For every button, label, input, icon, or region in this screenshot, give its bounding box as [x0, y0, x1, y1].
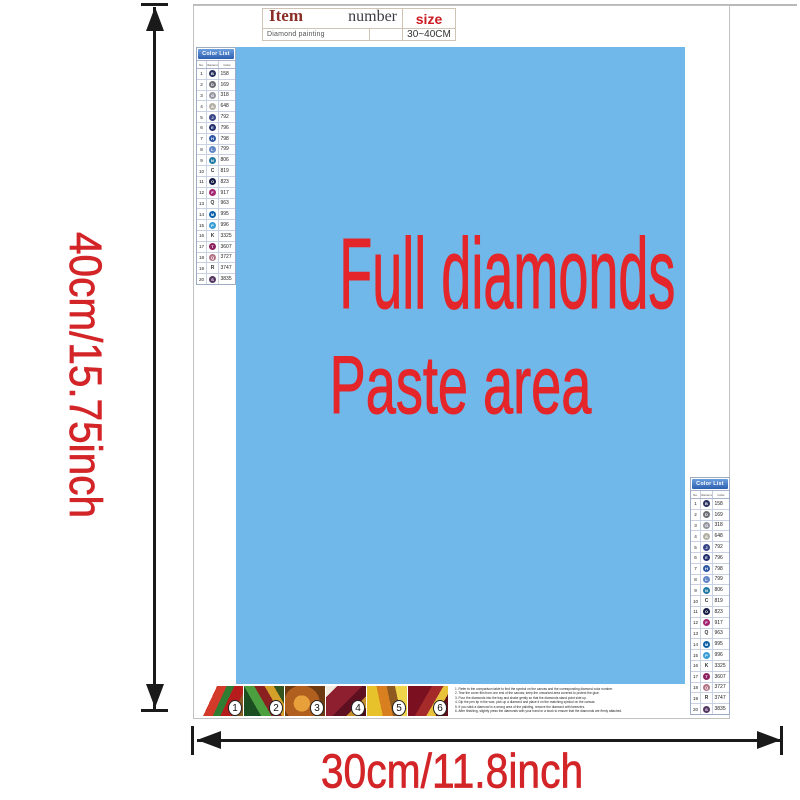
color-code: 917: [219, 190, 235, 196]
symbol-cell: B: [207, 69, 219, 79]
color-number: 16: [691, 661, 701, 671]
height-arrow-up-head: [146, 7, 164, 31]
color-list-row: 16 K3325: [197, 231, 235, 242]
number-value: [370, 29, 403, 40]
color-list-row: 17 T3607: [691, 672, 729, 683]
color-swatch: E: [703, 554, 710, 561]
color-number: 17: [691, 672, 701, 682]
color-swatch: J: [209, 114, 216, 121]
paste-area-subtitle: Paste area: [312, 344, 608, 428]
height-arrow-line: [153, 7, 156, 710]
color-list-row: 11 O823: [197, 177, 235, 188]
height-arrow-top-tick: [141, 3, 168, 6]
color-list-row: 5 J792: [197, 112, 235, 123]
color-code: 3607: [219, 244, 235, 250]
diamond-painting-product-image: Item number size Diamond painting 30~40C…: [0, 0, 800, 800]
color-swatch: O: [703, 608, 710, 615]
symbol-cell: E: [207, 123, 219, 133]
color-list-column-label: Diamond: [701, 491, 713, 498]
color-swatch: P: [209, 222, 216, 229]
color-number: 10: [197, 166, 207, 176]
color-number: 15: [197, 220, 207, 230]
width-arrow-left-tick: [191, 726, 194, 755]
color-swatch: B: [703, 500, 710, 507]
color-list-right: Color ListNo.DiamondColor 1 B158 2 D169 …: [690, 477, 730, 715]
color-list-row: 7 H798: [197, 134, 235, 145]
color-number: 6: [197, 123, 207, 133]
step-number-badge: 6: [433, 700, 447, 716]
color-list-row: 6 E796: [197, 123, 235, 134]
color-number: 1: [691, 499, 701, 509]
height-dimension-label: 40cm/15.75inch: [59, 232, 111, 518]
color-list-row: 9 N806: [691, 585, 729, 596]
height-arrow-bottom-tick: [141, 709, 168, 712]
color-code: 798: [219, 136, 235, 142]
color-number: 3: [691, 521, 701, 531]
step-thumbnail: 6: [408, 686, 448, 716]
color-code: 799: [219, 146, 235, 152]
color-list-left: Color ListNo.DiamondColor 1 B158 2 D169 …: [196, 47, 236, 285]
color-number: 17: [197, 242, 207, 252]
color-code: 3835: [219, 276, 235, 282]
symbol-cell: D: [701, 510, 713, 520]
color-number: 9: [197, 155, 207, 165]
color-list-row: 8 L799: [197, 145, 235, 156]
color-list-row: 4 A648: [691, 531, 729, 542]
color-number: 16: [197, 231, 207, 241]
symbol-cell: Q: [207, 253, 219, 263]
color-swatch: N: [703, 587, 710, 594]
step-thumbnails: 1 2 3 4 5 6: [203, 686, 448, 716]
color-number: 7: [691, 564, 701, 574]
step-thumbnail: 1: [203, 686, 243, 716]
width-dimension-label: 30cm/11.8inch: [321, 745, 583, 800]
symbol-cell: C: [207, 166, 219, 176]
color-symbol: C: [211, 168, 215, 174]
color-number: 11: [197, 177, 207, 187]
color-code: 648: [219, 103, 235, 109]
color-list-row: 20 S3835: [197, 274, 235, 284]
width-arrow-right-tick: [780, 726, 783, 755]
color-code: 318: [713, 522, 729, 528]
paste-area-title: Full diamonds: [339, 223, 581, 325]
color-swatch: E: [209, 124, 216, 131]
color-number: 9: [691, 585, 701, 595]
color-number: 5: [691, 542, 701, 552]
color-code: 3747: [219, 265, 235, 271]
symbol-cell: O: [207, 177, 219, 187]
symbol-cell: S: [207, 274, 219, 284]
color-symbol: R: [211, 265, 215, 271]
color-swatch: O: [209, 178, 216, 185]
color-code: 799: [713, 576, 729, 582]
color-list-row: 14 M995: [197, 209, 235, 220]
color-list-row: 12 F917: [197, 188, 235, 199]
step-thumbnail: 4: [326, 686, 366, 716]
symbol-cell: D: [207, 80, 219, 90]
color-code: 158: [713, 501, 729, 507]
symbol-cell: O: [701, 607, 713, 617]
color-code: 792: [219, 114, 235, 120]
color-list-row: 18 Q3727: [197, 253, 235, 264]
color-list-row: 4 A648: [197, 101, 235, 112]
symbol-cell: N: [701, 585, 713, 595]
color-list-row: 6 E796: [691, 553, 729, 564]
color-symbol: K: [705, 663, 709, 669]
color-list-row: 9 N806: [197, 155, 235, 166]
step-number-badge: 5: [392, 700, 406, 716]
color-swatch: D: [209, 81, 216, 88]
color-code: 996: [713, 652, 729, 658]
color-list-row: 13 Q963: [197, 199, 235, 210]
symbol-cell: T: [207, 242, 219, 252]
color-swatch: L: [209, 146, 216, 153]
color-list-row: 12 F917: [691, 618, 729, 629]
width-arrow-line: [197, 739, 782, 742]
color-code: 819: [713, 598, 729, 604]
color-number: 1: [197, 69, 207, 79]
step-number-badge: 4: [351, 700, 365, 716]
height-arrow-down-head: [146, 684, 164, 708]
symbol-cell: L: [701, 575, 713, 585]
color-number: 4: [691, 531, 701, 541]
color-list-title: Color List: [198, 49, 234, 59]
color-list-row: 15 P996: [197, 220, 235, 231]
color-number: 14: [691, 639, 701, 649]
color-swatch: H: [703, 565, 710, 572]
color-swatch: G: [703, 522, 710, 529]
color-list-title: Color List: [692, 479, 728, 489]
color-list-column-headers: No.DiamondColor: [691, 490, 729, 499]
symbol-cell: J: [207, 112, 219, 122]
color-list-row: 5 J792: [691, 542, 729, 553]
color-code: 796: [219, 125, 235, 131]
color-list-row: 10 C819: [691, 596, 729, 607]
symbol-cell: P: [207, 220, 219, 230]
step-thumbnail: 3: [285, 686, 325, 716]
symbol-cell: F: [207, 188, 219, 198]
color-swatch: L: [703, 576, 710, 583]
color-number: 18: [197, 253, 207, 263]
color-list-row: 15 P996: [691, 650, 729, 661]
color-code: 995: [219, 211, 235, 217]
symbol-cell: H: [207, 134, 219, 144]
color-number: 20: [197, 274, 207, 284]
color-swatch: S: [209, 276, 216, 283]
color-number: 8: [691, 575, 701, 585]
width-arrow-left-head: [197, 731, 221, 749]
color-swatch: T: [703, 673, 710, 680]
color-swatch: M: [703, 641, 710, 648]
item-number-header-cell: Item number: [263, 9, 403, 29]
color-number: 10: [691, 596, 701, 606]
color-code: 963: [219, 200, 235, 206]
color-number: 8: [197, 145, 207, 155]
step-number-badge: 2: [269, 700, 283, 716]
symbol-cell: T: [701, 672, 713, 682]
color-list-row: 7 H798: [691, 564, 729, 575]
color-list-column-label: No.: [691, 491, 701, 498]
color-code: 3607: [713, 674, 729, 680]
color-swatch: T: [209, 243, 216, 250]
color-code: 3325: [713, 663, 729, 669]
step-thumbnail: 2: [244, 686, 284, 716]
color-list-row: 8 L799: [691, 575, 729, 586]
color-code: 798: [713, 566, 729, 572]
instruction-line: 6. After finishing, slightly press the d…: [455, 709, 717, 713]
color-list-row: 3 G318: [197, 91, 235, 102]
symbol-cell: K: [701, 661, 713, 671]
color-number: 6: [691, 553, 701, 563]
color-list-row: 1 B158: [197, 69, 235, 80]
color-symbol: Q: [705, 630, 709, 636]
color-swatch: F: [703, 619, 710, 626]
color-number: 5: [197, 112, 207, 122]
color-swatch: N: [209, 157, 216, 164]
color-list-row: 17 T3607: [197, 242, 235, 253]
paste-area: Full diamonds Paste area: [236, 47, 685, 684]
symbol-cell: H: [701, 564, 713, 574]
symbol-cell: Q: [207, 199, 219, 209]
color-list-column-label: Color: [713, 491, 729, 498]
symbol-cell: G: [207, 91, 219, 101]
symbol-cell: Q: [701, 629, 713, 639]
color-number: 2: [197, 80, 207, 90]
color-list-row: 13 Q963: [691, 629, 729, 640]
item-info-table: Item number size Diamond painting 30~40C…: [262, 8, 456, 41]
color-number: 19: [197, 263, 207, 273]
color-number: 12: [197, 188, 207, 198]
symbol-cell: M: [207, 209, 219, 219]
color-number: 7: [197, 134, 207, 144]
color-number: 3: [197, 91, 207, 101]
color-swatch: B: [209, 70, 216, 77]
symbol-cell: A: [701, 531, 713, 541]
color-code: 819: [219, 168, 235, 174]
instruction-text: 1. Refer to the comparison table to find…: [455, 687, 717, 714]
symbol-cell: F: [701, 618, 713, 628]
step-number-badge: 1: [228, 700, 242, 716]
color-swatch: F: [209, 189, 216, 196]
color-code: 158: [219, 71, 235, 77]
symbol-cell: C: [701, 596, 713, 606]
item-value: Diamond painting: [263, 29, 370, 40]
color-code: 318: [219, 92, 235, 98]
size-value: 30~40CM: [403, 29, 455, 40]
color-list-row: 3 G318: [691, 521, 729, 532]
color-number: 12: [691, 618, 701, 628]
color-code: 3325: [219, 233, 235, 239]
color-code: 792: [713, 544, 729, 550]
width-arrow-right-head: [757, 731, 781, 749]
color-code: 806: [713, 587, 729, 593]
symbol-cell: E: [701, 553, 713, 563]
symbol-cell: G: [701, 521, 713, 531]
color-swatch: J: [703, 544, 710, 551]
symbol-cell: B: [701, 499, 713, 509]
color-list-column-headers: No.DiamondColor: [197, 60, 235, 69]
color-list-column-label: Diamond: [207, 61, 219, 68]
color-number: 14: [197, 209, 207, 219]
symbol-cell: J: [701, 542, 713, 552]
color-code: 169: [219, 82, 235, 88]
color-list-row: 10 C819: [197, 166, 235, 177]
color-list-row: 2 D169: [197, 80, 235, 91]
color-symbol: K: [211, 233, 215, 239]
color-number: 13: [197, 199, 207, 209]
color-code: 648: [713, 533, 729, 539]
color-code: 806: [219, 157, 235, 163]
symbol-cell: N: [207, 155, 219, 165]
color-swatch: G: [209, 92, 216, 99]
symbol-cell: P: [701, 650, 713, 660]
color-number: 11: [691, 607, 701, 617]
symbol-cell: A: [207, 101, 219, 111]
color-code: 796: [713, 555, 729, 561]
symbol-cell: R: [207, 263, 219, 273]
color-code: 823: [713, 609, 729, 615]
color-list-column-label: No.: [197, 61, 207, 68]
color-swatch: M: [209, 211, 216, 218]
color-number: 15: [691, 650, 701, 660]
color-code: 169: [713, 512, 729, 518]
color-list-row: 14 M995: [691, 639, 729, 650]
symbol-cell: L: [207, 145, 219, 155]
color-swatch: Q: [209, 254, 216, 261]
color-symbol: Q: [211, 200, 215, 206]
color-swatch: P: [703, 652, 710, 659]
symbol-cell: M: [701, 639, 713, 649]
color-swatch: A: [209, 103, 216, 110]
color-list-row: 19 R3747: [197, 263, 235, 274]
color-code: 963: [713, 630, 729, 636]
color-code: 3727: [219, 254, 235, 260]
color-symbol: C: [705, 598, 709, 604]
color-code: 996: [219, 222, 235, 228]
color-list-row: 16 K3325: [691, 661, 729, 672]
item-header-label: Item: [269, 6, 303, 26]
color-number: 13: [691, 629, 701, 639]
number-header-label: number: [348, 8, 397, 26]
symbol-cell: K: [207, 231, 219, 241]
color-swatch: D: [703, 511, 710, 518]
color-swatch: A: [703, 533, 710, 540]
color-list-row: 1 B158: [691, 499, 729, 510]
color-swatch: H: [209, 135, 216, 142]
color-list-row: 2 D169: [691, 510, 729, 521]
step-number-badge: 3: [310, 700, 324, 716]
color-number: 4: [197, 101, 207, 111]
color-code: 917: [713, 620, 729, 626]
color-number: 2: [691, 510, 701, 520]
color-code: 823: [219, 179, 235, 185]
size-header-label: size: [403, 9, 455, 29]
color-list-column-label: Color: [219, 61, 235, 68]
color-code: 995: [713, 641, 729, 647]
step-thumbnail: 5: [367, 686, 407, 716]
color-list-row: 11 O823: [691, 607, 729, 618]
